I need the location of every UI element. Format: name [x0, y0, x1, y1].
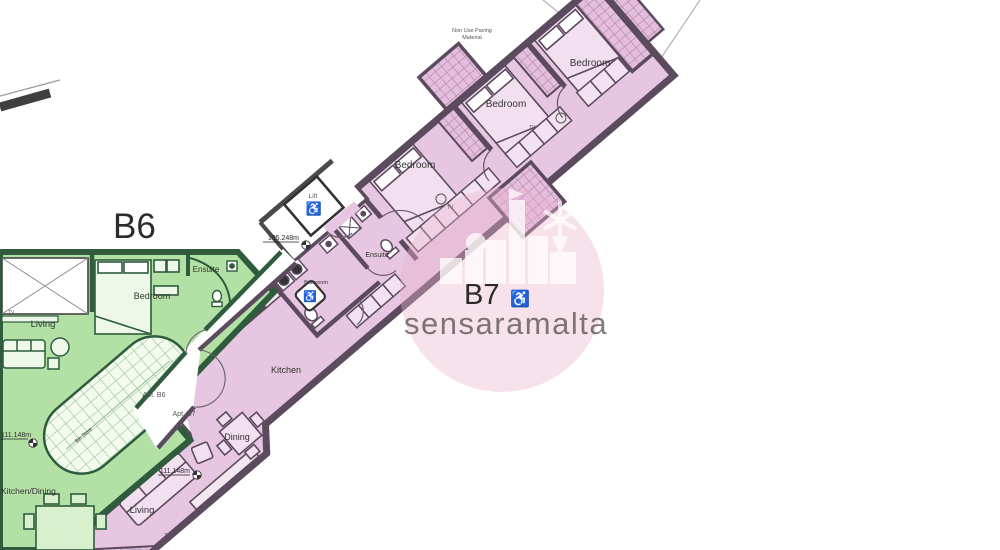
wheelchair-icon: ♿ — [303, 290, 317, 303]
apt-b7-door-label: Apt. B7 — [173, 411, 196, 418]
b6-level-label: 111.148m — [1, 432, 31, 439]
floorplan-canvas: Bin Store — [0, 0, 1000, 550]
site-note-line1: Non Use Paving — [452, 28, 492, 34]
watermark-text: sensaramalta — [404, 306, 608, 341]
tv-label: TV — [447, 205, 454, 211]
wheelchair-icon: ♿ — [510, 289, 530, 308]
b6-living-label: Living — [31, 319, 56, 330]
b7-level-label: 111.148m — [160, 468, 190, 475]
b6-ensuite-label: Ensuite — [193, 265, 220, 274]
b7-ensuite-label: Ensuite — [365, 252, 388, 259]
level-marker-icon — [193, 471, 201, 479]
lift-label: Lift — [309, 193, 318, 200]
b7-bedroom3-label: Bedroom — [570, 58, 611, 69]
shaft — [2, 258, 88, 322]
floorplan-page: Bin Store — [0, 0, 1000, 550]
b7-bathroom-label: Bathroom — [304, 280, 328, 286]
apt-b6-door-label: Apt. B6 — [143, 392, 166, 399]
tv-label: TV — [529, 125, 536, 131]
b7-bedroom1-label: Bedroom — [395, 160, 436, 171]
wheelchair-icon: ♿ — [306, 201, 322, 216]
b6-kitchen-dining-label: Kitchen/Dining — [1, 486, 56, 496]
watermark-circle — [400, 188, 604, 392]
tv-label: TV — [8, 310, 15, 316]
b7-bedroom2-label: Bedroom — [486, 99, 527, 110]
tv-label: TV — [164, 533, 171, 539]
b6-title: B6 — [113, 207, 156, 246]
b7-title: B7 — [464, 279, 499, 311]
b6-living-furniture — [3, 338, 69, 369]
landing-level-label: 105.248m — [268, 235, 299, 242]
site-note-line2: Material — [462, 35, 482, 41]
level-marker-icon — [302, 241, 310, 249]
b7-dining-label: Dining — [224, 432, 250, 442]
b7-living-label: Living — [130, 505, 155, 516]
level-marker-icon — [29, 439, 37, 447]
b6-bedroom-label: Bedroom — [134, 291, 171, 301]
b7-kitchen-label: Kitchen — [271, 365, 301, 375]
